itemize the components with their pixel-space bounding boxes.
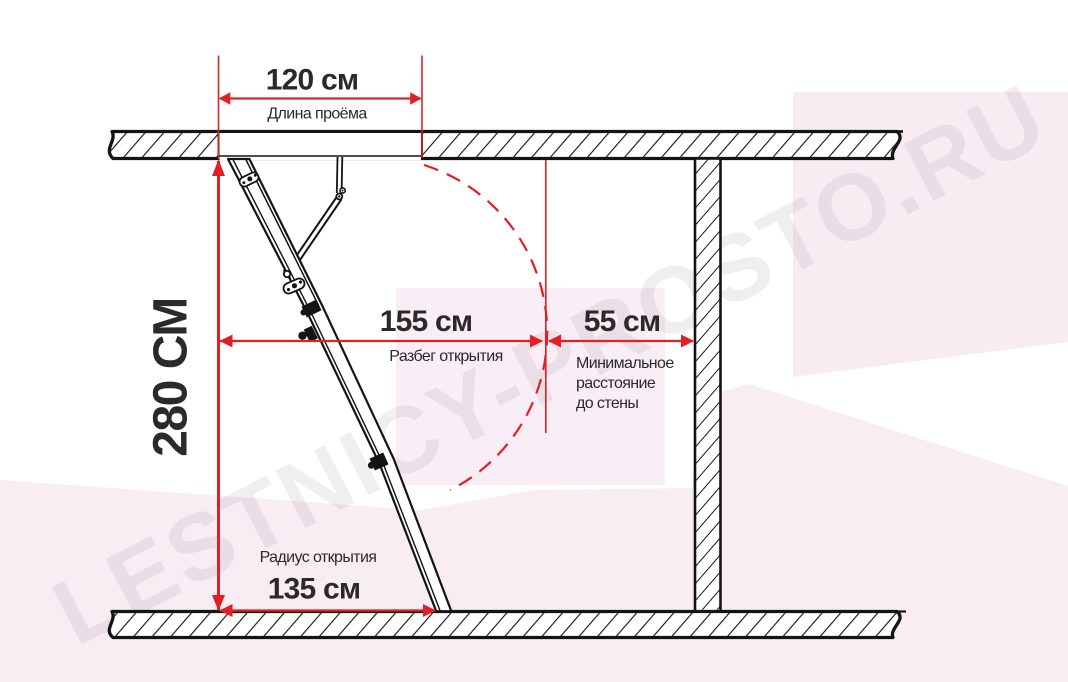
- svg-text:55 см: 55 см: [584, 305, 661, 338]
- svg-text:120 см: 120 см: [266, 64, 358, 97]
- svg-text:расстояние: расстояние: [576, 375, 656, 392]
- svg-text:155 см: 155 см: [380, 305, 472, 338]
- svg-text:Минимальное: Минимальное: [576, 355, 674, 372]
- svg-text:до стены: до стены: [576, 395, 638, 412]
- svg-text:135 см: 135 см: [268, 573, 360, 606]
- svg-text:Длина проёма: Длина проёма: [267, 106, 367, 123]
- svg-text:Разбег открытия: Разбег открытия: [389, 348, 502, 365]
- svg-text:Радиус открытия: Радиус открытия: [260, 549, 377, 566]
- svg-text:280 СМ: 280 СМ: [145, 298, 198, 456]
